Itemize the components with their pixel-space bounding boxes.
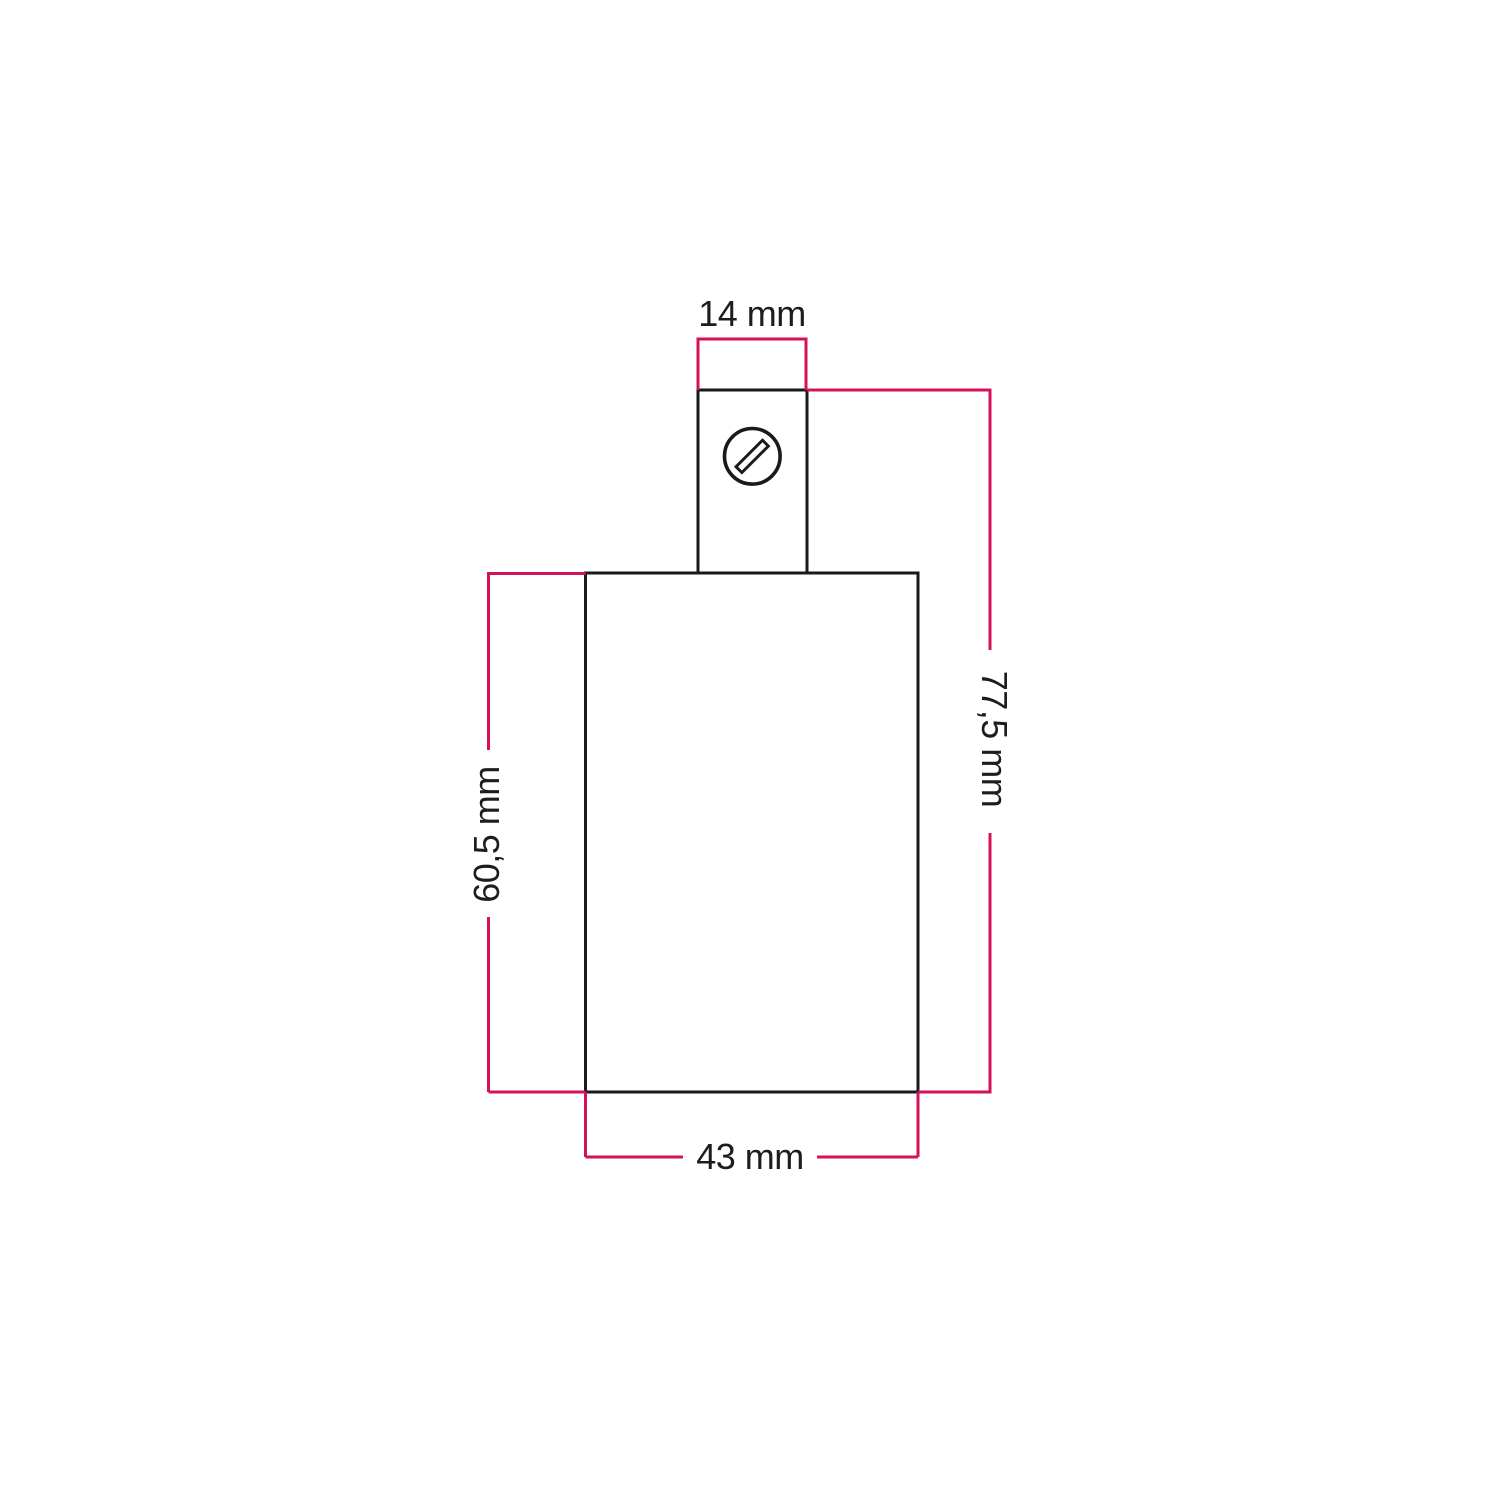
svg-text:77,5 mm: 77,5 mm bbox=[974, 671, 1015, 808]
svg-text:14 mm: 14 mm bbox=[698, 293, 806, 334]
svg-text:60,5 mm: 60,5 mm bbox=[466, 766, 507, 903]
svg-text:43 mm: 43 mm bbox=[696, 1136, 804, 1177]
